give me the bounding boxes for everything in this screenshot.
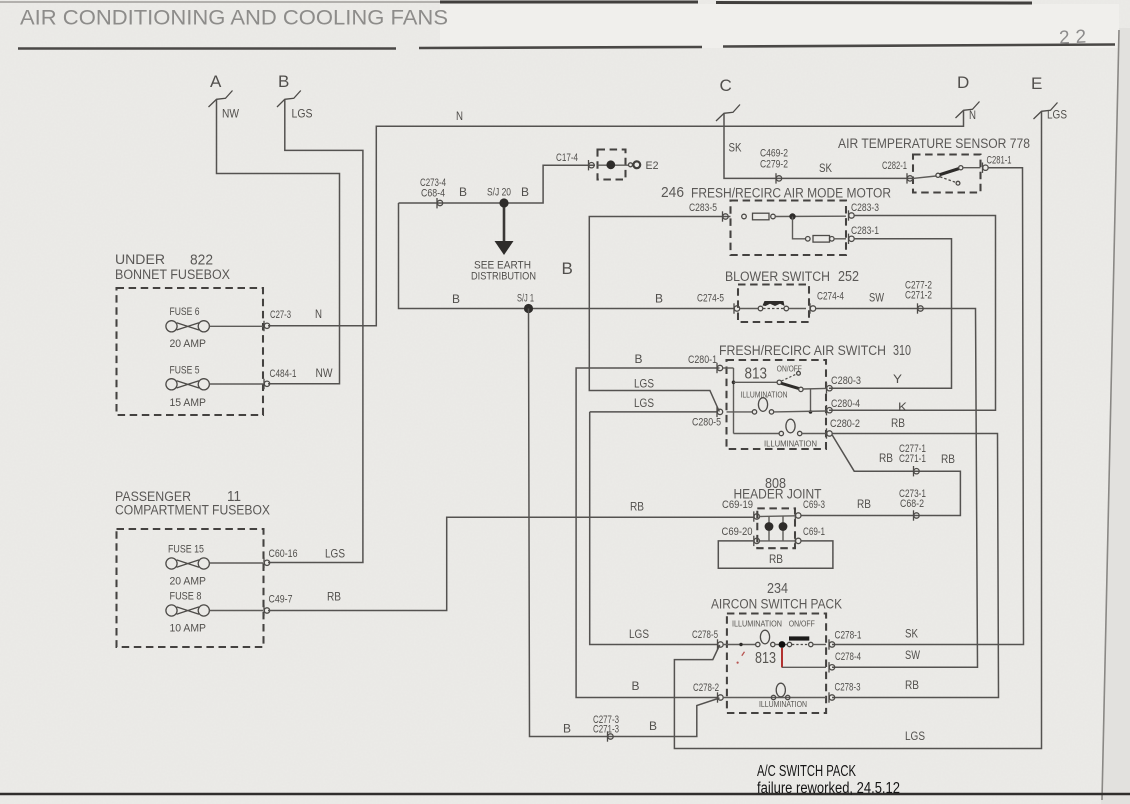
svg-text:RB: RB bbox=[630, 500, 644, 514]
svg-text:C271-2: C271-2 bbox=[905, 290, 932, 302]
svg-text:RB: RB bbox=[941, 452, 955, 466]
svg-text:C271-1: C271-1 bbox=[899, 453, 926, 465]
svg-text:C278-2: C278-2 bbox=[693, 682, 719, 694]
svg-text:C279-2: C279-2 bbox=[760, 159, 788, 171]
svg-text:RB: RB bbox=[891, 416, 905, 430]
svg-text:UNDER: UNDER bbox=[115, 252, 165, 267]
svg-text:SK: SK bbox=[819, 161, 832, 175]
svg-text:B: B bbox=[563, 722, 571, 736]
svg-text:C69-1: C69-1 bbox=[803, 526, 825, 538]
svg-text:22: 22 bbox=[1058, 26, 1092, 49]
svg-text:FUSE 5: FUSE 5 bbox=[170, 365, 200, 377]
svg-text:C69-3: C69-3 bbox=[803, 499, 825, 511]
svg-text:C283-3: C283-3 bbox=[851, 202, 879, 214]
svg-text:K: K bbox=[898, 400, 907, 414]
svg-text:LGS: LGS bbox=[634, 377, 654, 391]
svg-text:E: E bbox=[1031, 74, 1042, 93]
svg-text:RB: RB bbox=[879, 451, 893, 465]
svg-text:15 AMP: 15 AMP bbox=[170, 397, 207, 409]
svg-text:D: D bbox=[957, 73, 969, 92]
svg-text:FUSE 8: FUSE 8 bbox=[170, 591, 202, 603]
svg-text:LGS: LGS bbox=[905, 729, 925, 743]
svg-text:B: B bbox=[562, 259, 573, 278]
svg-text:C274-4: C274-4 bbox=[817, 291, 844, 303]
svg-text:ILLUMINATION: ILLUMINATION bbox=[759, 700, 807, 709]
svg-text:FRESH/RECIRC AIR SWITCH: FRESH/RECIRC AIR SWITCH bbox=[719, 343, 886, 358]
svg-text:NW: NW bbox=[222, 107, 240, 121]
svg-text:SK: SK bbox=[905, 627, 918, 641]
svg-text:B: B bbox=[459, 185, 467, 199]
svg-text:RB: RB bbox=[327, 590, 341, 604]
svg-text:813: 813 bbox=[755, 650, 776, 667]
svg-text:S/J 1: S/J 1 bbox=[517, 293, 534, 305]
svg-text:LGS: LGS bbox=[629, 627, 649, 641]
svg-text:C60-16: C60-16 bbox=[269, 548, 298, 560]
svg-text:BLOWER SWITCH: BLOWER SWITCH bbox=[725, 269, 830, 284]
svg-text:SW: SW bbox=[905, 648, 921, 662]
svg-text:AIR CONDITIONING AND COOLING F: AIR CONDITIONING AND COOLING FANS bbox=[20, 6, 448, 30]
svg-text:C69-20: C69-20 bbox=[722, 526, 753, 538]
svg-text:C280-3: C280-3 bbox=[831, 375, 861, 387]
svg-text:20 AMP: 20 AMP bbox=[170, 576, 207, 588]
svg-text:234: 234 bbox=[767, 580, 788, 597]
svg-text:C: C bbox=[720, 76, 732, 95]
svg-text:C278-5: C278-5 bbox=[692, 629, 718, 641]
svg-text:C484-1: C484-1 bbox=[270, 368, 297, 380]
svg-text:C282-1: C282-1 bbox=[882, 160, 907, 172]
svg-text:B: B bbox=[655, 292, 663, 306]
svg-text:C280-1: C280-1 bbox=[688, 354, 717, 366]
svg-text:A: A bbox=[210, 72, 222, 91]
svg-text:C283-1: C283-1 bbox=[851, 225, 879, 237]
svg-text:N: N bbox=[969, 108, 976, 122]
svg-text:A/C SWITCH PACK: A/C SWITCH PACK bbox=[757, 763, 856, 780]
svg-text:C274-5: C274-5 bbox=[697, 293, 724, 305]
svg-text:DISTRIBUTION: DISTRIBUTION bbox=[471, 271, 536, 283]
svg-text:LGS: LGS bbox=[634, 396, 654, 410]
svg-text:AIR TEMPERATURE SENSOR 778: AIR TEMPERATURE SENSOR 778 bbox=[838, 136, 1030, 151]
svg-text:NW: NW bbox=[316, 366, 334, 380]
svg-text:C278-3: C278-3 bbox=[835, 682, 861, 694]
svg-text:C271-3: C271-3 bbox=[593, 724, 619, 736]
svg-text:SW: SW bbox=[869, 291, 885, 305]
svg-text:FRESH/RECIRC AIR MODE MOTOR: FRESH/RECIRC AIR MODE MOTOR bbox=[691, 186, 891, 201]
svg-text:B: B bbox=[521, 185, 529, 199]
svg-text:FUSE 6: FUSE 6 bbox=[170, 306, 200, 318]
svg-text:E2: E2 bbox=[646, 160, 659, 172]
svg-text:B: B bbox=[635, 352, 643, 366]
svg-text:LGS: LGS bbox=[325, 547, 345, 561]
svg-text:N: N bbox=[315, 307, 322, 321]
svg-text:246: 246 bbox=[661, 184, 684, 201]
svg-text:Y: Y bbox=[893, 372, 902, 386]
svg-text:10 AMP: 10 AMP bbox=[170, 623, 207, 635]
svg-text:C280-4: C280-4 bbox=[831, 398, 860, 410]
svg-text:C69-19: C69-19 bbox=[722, 499, 753, 511]
svg-text:LGS: LGS bbox=[1047, 108, 1067, 122]
svg-text:C278-1: C278-1 bbox=[835, 630, 862, 642]
svg-text:C278-4: C278-4 bbox=[835, 651, 861, 663]
svg-text:B: B bbox=[649, 719, 657, 733]
svg-text:C281-1: C281-1 bbox=[987, 155, 1012, 167]
svg-text:C68-2: C68-2 bbox=[900, 498, 924, 510]
svg-text:S/J 20: S/J 20 bbox=[487, 187, 511, 199]
svg-text:C280-5: C280-5 bbox=[692, 417, 721, 429]
svg-text:LGS: LGS bbox=[292, 107, 313, 121]
svg-text:B: B bbox=[632, 679, 640, 693]
svg-text:RB: RB bbox=[905, 678, 919, 692]
svg-text:ON/OFF: ON/OFF bbox=[789, 620, 815, 629]
svg-text:813: 813 bbox=[745, 366, 768, 383]
svg-text:252: 252 bbox=[838, 269, 859, 285]
svg-text:C280-2: C280-2 bbox=[830, 418, 860, 430]
svg-text:SK: SK bbox=[729, 141, 742, 155]
svg-text:B: B bbox=[278, 72, 289, 91]
svg-text:310: 310 bbox=[893, 343, 911, 359]
svg-text:ILLUMINATION: ILLUMINATION bbox=[732, 620, 782, 629]
svg-text:C27-3: C27-3 bbox=[270, 309, 291, 321]
svg-text:B: B bbox=[452, 292, 460, 306]
svg-text:C17-4: C17-4 bbox=[556, 152, 578, 164]
svg-text:ON/OFF: ON/OFF bbox=[777, 365, 802, 374]
svg-text:C49-7: C49-7 bbox=[269, 594, 293, 606]
svg-text:20 AMP: 20 AMP bbox=[170, 338, 207, 350]
svg-text:failure reworked, 24.5.12: failure reworked, 24.5.12 bbox=[757, 780, 900, 797]
svg-text:BONNET FUSEBOX: BONNET FUSEBOX bbox=[115, 267, 230, 282]
svg-text:ILLUMINATION: ILLUMINATION bbox=[764, 440, 817, 449]
svg-text:RB: RB bbox=[857, 497, 871, 511]
svg-text:FUSE 15: FUSE 15 bbox=[168, 544, 204, 556]
svg-text:COMPARTMENT FUSEBOX: COMPARTMENT FUSEBOX bbox=[115, 503, 270, 518]
svg-text:C283-5: C283-5 bbox=[689, 202, 717, 214]
svg-text:N: N bbox=[456, 109, 463, 123]
svg-text:AIRCON SWITCH PACK: AIRCON SWITCH PACK bbox=[711, 597, 842, 612]
svg-text:RB: RB bbox=[769, 552, 783, 566]
svg-text:C68-4: C68-4 bbox=[421, 188, 445, 200]
